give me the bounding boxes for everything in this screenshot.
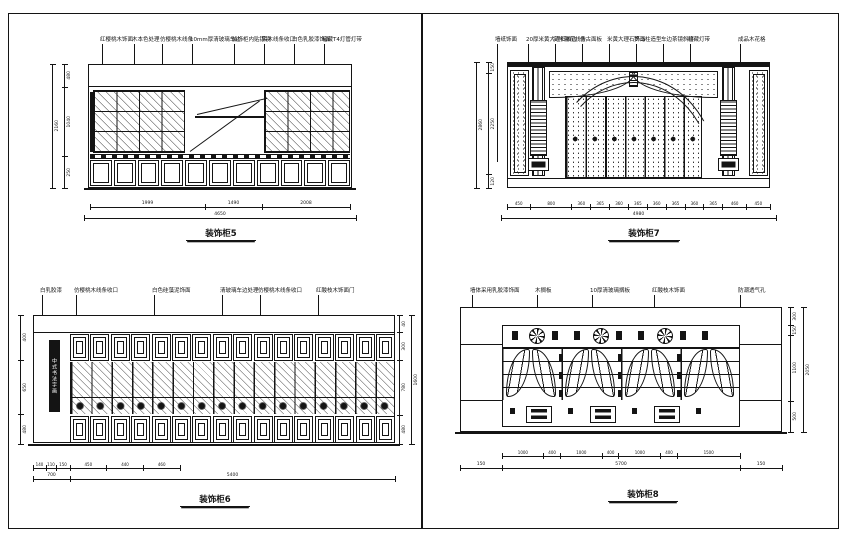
dim-seg: 780 xyxy=(400,360,408,415)
bevel-panel xyxy=(90,416,109,443)
annotation-text: 实木线条收口 xyxy=(262,37,295,43)
dim-label: 360 xyxy=(610,201,629,207)
bevel-panel xyxy=(233,416,252,443)
bevel-panel xyxy=(192,334,211,361)
top-cornice-band xyxy=(507,63,770,67)
annotation-label: 木搁板 xyxy=(535,288,552,295)
bevel-panel xyxy=(356,334,375,361)
dim-label: 460 xyxy=(143,462,180,468)
annotation-label: 防潮透气孔 xyxy=(738,288,766,295)
annotation-text: 木搁板 xyxy=(535,288,552,294)
dim-label: 1000 xyxy=(560,450,602,456)
dim-label: 400 xyxy=(544,450,561,456)
frieze-block xyxy=(574,331,580,340)
dimension-overall-left: 2860 xyxy=(476,62,485,188)
bevel-panel xyxy=(90,334,109,361)
rosette-icon xyxy=(529,328,545,344)
dim-label: 120 xyxy=(491,177,496,186)
dim-label: 480 xyxy=(23,425,28,434)
dim-label: 360 xyxy=(572,201,591,207)
bevel-panel xyxy=(213,334,232,361)
dim-label: 2050 xyxy=(806,364,811,375)
frieze-block xyxy=(512,331,518,340)
annotation-label: 暗藏灯带 xyxy=(688,37,710,44)
bevel-panel xyxy=(152,334,171,361)
annotation-text: 仿樱桃木线条收口 xyxy=(74,288,118,294)
bevel-panel xyxy=(152,416,171,443)
base-block xyxy=(510,408,515,414)
dim-label: 1500 xyxy=(677,450,740,456)
annotation-text: 红酸枝木饰面 xyxy=(652,288,685,294)
base-block xyxy=(568,408,573,414)
dimension-chain-left: 480 1040 250 xyxy=(64,64,73,188)
wall-shelf-line xyxy=(460,400,502,401)
base-block xyxy=(696,408,701,414)
dimension-chain-bottom: 1999 1490 2008 xyxy=(90,199,350,208)
dim-label: 440 xyxy=(107,462,144,468)
frieze-block xyxy=(680,331,686,340)
drawer-panel xyxy=(90,160,112,186)
dimension-chain-bottom: 140 110 150 450 440 460 xyxy=(33,460,180,469)
frieze-block xyxy=(702,331,708,340)
annotation-label: 实木线条收口 xyxy=(262,37,295,44)
annotation-label: 墙纸饰面 xyxy=(495,37,517,44)
dim-label: 2860 xyxy=(479,119,484,130)
bevel-panel xyxy=(192,416,211,443)
annotation-label: 暗藏T4灯管灯带 xyxy=(322,37,362,44)
annotation-label: 仿樱桃木线条收口 xyxy=(74,288,118,295)
dim-label: 360 xyxy=(647,201,666,207)
bevel-panel xyxy=(315,334,334,361)
dim-seg: 120 xyxy=(489,174,497,188)
bevel-panel xyxy=(70,416,89,443)
divider-tab xyxy=(618,372,622,379)
dimension-overall-right: 1600 xyxy=(411,315,420,444)
annotation-label: 红樱桃木饰面 xyxy=(100,37,133,44)
dim-label: 150 xyxy=(491,63,496,72)
dim-label: 450 xyxy=(70,462,107,468)
dim-label: 2008 xyxy=(262,201,350,207)
dim-label: 300 xyxy=(793,312,798,321)
dim-label: 2160 xyxy=(55,120,60,131)
view-cab6: 白乳胶漆 仿樱桃木线条收口 白色硅藻泥饰面 清玻璃车边处理 仿樱桃木线条收口 红… xyxy=(0,270,422,540)
dim-label: 4980 xyxy=(501,212,776,218)
bevel-panel xyxy=(254,416,273,443)
dim-label: 450 xyxy=(507,201,530,207)
dim-label: 5700 xyxy=(502,462,740,468)
dim-seg: 650 xyxy=(21,360,29,414)
dimension-chain-bottom: 1000 400 1000 400 1000 400 1500 xyxy=(502,448,740,457)
annotation-text: 木本色处理 xyxy=(132,37,160,43)
bevel-panel xyxy=(356,416,375,443)
plinth-band xyxy=(507,178,770,188)
annotation-text: 仿樱桃木线条 xyxy=(160,37,193,43)
drawer-stack xyxy=(526,406,552,423)
dim-label: 700 xyxy=(33,473,70,479)
dim-seg: 2250 xyxy=(489,73,497,174)
dim-label: 1040 xyxy=(67,116,72,127)
bevel-panel xyxy=(274,334,293,361)
annotation-text: 仿古面板 xyxy=(580,37,602,43)
leader-line xyxy=(497,44,498,162)
dim-label: 650 xyxy=(23,383,28,392)
drawer-stack xyxy=(590,406,616,423)
dim-seg: 1040 xyxy=(65,87,73,156)
dimension-overall-bottom: 700 5400 xyxy=(33,471,395,480)
dim-seg: 500 xyxy=(791,401,799,432)
dim-label: 400 xyxy=(23,333,28,342)
dimension-chain-left: 400 650 480 xyxy=(20,315,29,444)
drawer-panel xyxy=(114,160,136,186)
annotation-text: 防潮透气孔 xyxy=(738,288,766,294)
dim-seg: 1100 xyxy=(791,335,799,401)
glass-door-bank-left xyxy=(93,90,185,153)
drawer-panel xyxy=(257,160,279,186)
dim-label: 4650 xyxy=(84,212,356,218)
bevel-panel xyxy=(294,416,313,443)
bevel-panel xyxy=(335,416,354,443)
dim-seg: 2860 xyxy=(477,62,485,188)
louver-panel-right xyxy=(720,100,737,156)
drawer-panel xyxy=(233,160,255,186)
divider-tab xyxy=(677,390,681,397)
dim-label: 365 xyxy=(704,201,723,207)
rosette-icon xyxy=(593,328,609,344)
annotation-text: 墙体采用乳胶漆饰面 xyxy=(470,288,520,294)
dim-label: 365 xyxy=(628,201,647,207)
stone-pilaster-right xyxy=(749,70,768,176)
annotation-label: 白乳胶漆 xyxy=(40,288,62,295)
view-title: 装饰柜6 xyxy=(180,493,250,507)
dim-label: 300 xyxy=(402,342,407,351)
view-title: 装饰柜5 xyxy=(186,227,256,241)
panel-inner-frame xyxy=(753,74,765,173)
bevel-panel xyxy=(274,416,293,443)
dim-label: 500 xyxy=(793,412,798,421)
rosette-icon xyxy=(657,328,673,344)
bevel-panel xyxy=(213,416,232,443)
drawer-panel xyxy=(161,160,183,186)
dim-label: 1999 xyxy=(90,201,205,207)
frieze-block xyxy=(616,331,622,340)
mid-shelf-line xyxy=(195,116,264,118)
bevel-panel xyxy=(111,334,130,361)
dim-label: 250 xyxy=(67,168,72,177)
annotation-text: 10厚清玻璃搁板 xyxy=(590,288,630,294)
drawer-panel xyxy=(138,160,160,186)
bevel-panel xyxy=(254,334,273,361)
dimension-chain-bottom2: 150 5700 150 xyxy=(460,460,782,469)
divider-tab xyxy=(618,354,622,361)
bevel-panel xyxy=(315,416,334,443)
bevel-panel xyxy=(111,416,130,443)
view-title: 装饰柜7 xyxy=(608,227,680,241)
drawer-panel xyxy=(304,160,326,186)
bevel-panel xyxy=(131,416,150,443)
divider-tab xyxy=(677,372,681,379)
dim-label: 150 xyxy=(460,462,502,468)
dimension-overall-bottom: 4980 xyxy=(501,210,776,219)
annotation-label: 罗马柱造型 xyxy=(634,37,662,44)
drawer-panel xyxy=(185,160,207,186)
bevel-panel xyxy=(172,416,191,443)
annotation-text: 仿樱桃木线条收口 xyxy=(258,288,302,294)
dimension-chain-bottom: 450 800 360 365 360 365 360 365 360 365 … xyxy=(507,199,770,208)
annotation-label: 成品木花格 xyxy=(738,37,766,44)
wall-shelf-line xyxy=(740,400,782,401)
dim-seg: 2050 xyxy=(804,307,812,432)
annotation-text: 暗藏T4灯管灯带 xyxy=(322,37,362,43)
dimension-chain-right: 40 300 780 480 xyxy=(399,315,408,444)
dim-seg: 400 xyxy=(21,315,29,360)
annotation-label: 仿樱桃木线条 xyxy=(160,37,193,44)
dim-label: 400 xyxy=(661,450,678,456)
dim-label: 1100 xyxy=(793,362,798,373)
view-cab5: 红樱桃木饰面 木本色处理 仿樱桃木线条 10mm厚清玻璃车边 装饰柜内贴银镜 实… xyxy=(0,0,422,270)
dim-seg: 480 xyxy=(400,415,408,444)
frieze-block xyxy=(638,331,644,340)
dimension-chain-left: 150 2250 120 xyxy=(488,62,497,188)
signboard-text: 中式书法字画 xyxy=(51,358,58,394)
annotation-label: 墙体采用乳胶漆饰面 xyxy=(470,288,520,295)
base-panel-right xyxy=(718,158,739,171)
annotation-text: 清玻璃车边处理 xyxy=(220,288,259,294)
dim-label: 2250 xyxy=(491,118,496,129)
annotation-text: 罗马柱造型 xyxy=(634,37,662,43)
dimension-overall-bottom: 4650 xyxy=(84,210,356,219)
dim-label: 40 xyxy=(402,321,407,327)
bevel-panel xyxy=(376,334,395,361)
dentil-band xyxy=(90,154,350,159)
dim-label: 480 xyxy=(67,71,72,80)
dimension-chain-right: 300 150 1100 500 xyxy=(790,307,799,432)
base-block xyxy=(632,408,637,414)
dim-seg: 480 xyxy=(21,414,29,444)
dim-label: 110 xyxy=(46,462,56,468)
dim-label: 150 xyxy=(740,462,782,468)
ground-line xyxy=(28,444,400,446)
marble-door-bank xyxy=(565,96,702,178)
dim-seg: 1600 xyxy=(412,315,420,444)
dim-label: 800 xyxy=(530,201,572,207)
stone-pilaster-left xyxy=(510,70,529,176)
top-band-line xyxy=(33,332,395,333)
bevel-panel xyxy=(294,334,313,361)
bevel-panel xyxy=(233,334,252,361)
dim-seg: 150 xyxy=(791,325,799,335)
drawer-stack xyxy=(654,406,680,423)
dim-label: 450 xyxy=(747,201,770,207)
annotation-label: 仿古面板 xyxy=(580,37,602,44)
annotation-label: 木本色处理 xyxy=(132,37,160,44)
dim-seg: 150 xyxy=(489,62,497,73)
view-title: 装饰柜8 xyxy=(608,488,678,502)
dim-label: 1490 xyxy=(205,201,262,207)
annotation-text: 白乳胶漆 xyxy=(40,288,62,294)
annotation-label: 清玻璃车边处理 xyxy=(220,288,259,295)
dim-label: 150 xyxy=(56,462,70,468)
dim-label: 1000 xyxy=(502,450,544,456)
view-cab7: 墙纸饰面 20厚米黄大理石收边 实木雕花线条 仿古面板 米黄大理石饰面 罗马柱造… xyxy=(422,0,845,270)
drawer-panel xyxy=(209,160,231,186)
base-panel-left xyxy=(528,158,549,171)
divider-tab xyxy=(677,354,681,361)
bevel-panel xyxy=(70,334,89,361)
drawer-panel xyxy=(328,160,350,186)
annotation-label: 红酸枝木饰面 xyxy=(652,288,685,295)
divider-tab xyxy=(559,372,563,379)
dimension-overall-right: 2050 xyxy=(803,307,812,432)
annotation-text: 红酸枝木饰面门 xyxy=(316,288,355,294)
wall-shelf-line xyxy=(740,344,782,345)
carving-band xyxy=(70,397,395,414)
dimension-overall-left: 2160 xyxy=(52,64,61,188)
dim-seg: 40 xyxy=(400,315,408,332)
dim-label: 780 xyxy=(402,383,407,392)
dim-seg: 2160 xyxy=(53,64,61,188)
annotation-label: 10厚清玻璃搁板 xyxy=(590,288,630,295)
dim-label: 365 xyxy=(666,201,685,207)
divider-tab xyxy=(559,354,563,361)
annotation-text: 白色硅藻泥饰面 xyxy=(152,288,191,294)
annotation-text: 成品木花格 xyxy=(738,37,766,43)
signboard: 中式书法字画 xyxy=(49,340,60,412)
ground-line xyxy=(455,432,787,434)
annotation-text: 红樱桃木饰面 xyxy=(100,37,133,43)
lower-panel-row xyxy=(70,416,395,443)
frieze-block xyxy=(552,331,558,340)
ground-line xyxy=(84,188,356,190)
dim-label: 365 xyxy=(591,201,610,207)
dim-label: 460 xyxy=(723,201,747,207)
view-cab8: 墙体采用乳胶漆饰面 木搁板 10厚清玻璃搁板 红酸枝木饰面 防潮透气孔 1000… xyxy=(422,270,845,540)
dim-seg: 300 xyxy=(400,332,408,360)
dim-seg: 300 xyxy=(791,307,799,325)
top-band-line xyxy=(88,86,352,87)
upper-panel-row xyxy=(70,334,395,361)
dim-label: 1600 xyxy=(414,374,419,385)
annotation-text: 暗藏灯带 xyxy=(688,37,710,43)
louver-panel-left xyxy=(530,100,547,156)
annotation-label: 仿樱桃木线条收口 xyxy=(258,288,302,295)
dim-label: 150 xyxy=(793,326,798,335)
annotation-label: 白色硅藻泥饰面 xyxy=(152,288,191,295)
bevel-panel xyxy=(335,334,354,361)
divider-tab xyxy=(559,390,563,397)
dim-seg: 250 xyxy=(65,156,73,188)
glass-door-bank-right xyxy=(264,90,350,153)
drawer-row xyxy=(90,160,350,186)
annotation-label: 红酸枝木饰面门 xyxy=(316,288,355,295)
dim-label: 480 xyxy=(402,425,407,434)
bevel-panel xyxy=(172,334,191,361)
divider-tab xyxy=(618,390,622,397)
dim-label: 140 xyxy=(33,462,46,468)
dim-label: 400 xyxy=(602,450,619,456)
bevel-panel xyxy=(376,416,395,443)
dim-label: 5400 xyxy=(70,473,395,479)
bevel-panel xyxy=(131,334,150,361)
annotation-text: 墙纸饰面 xyxy=(495,37,517,43)
dim-seg: 480 xyxy=(65,64,73,87)
panel-inner-frame xyxy=(514,74,526,173)
dim-label: 360 xyxy=(685,201,704,207)
dim-label: 1000 xyxy=(619,450,661,456)
drawer-panel xyxy=(281,160,303,186)
wall-shelf-line xyxy=(460,344,502,345)
